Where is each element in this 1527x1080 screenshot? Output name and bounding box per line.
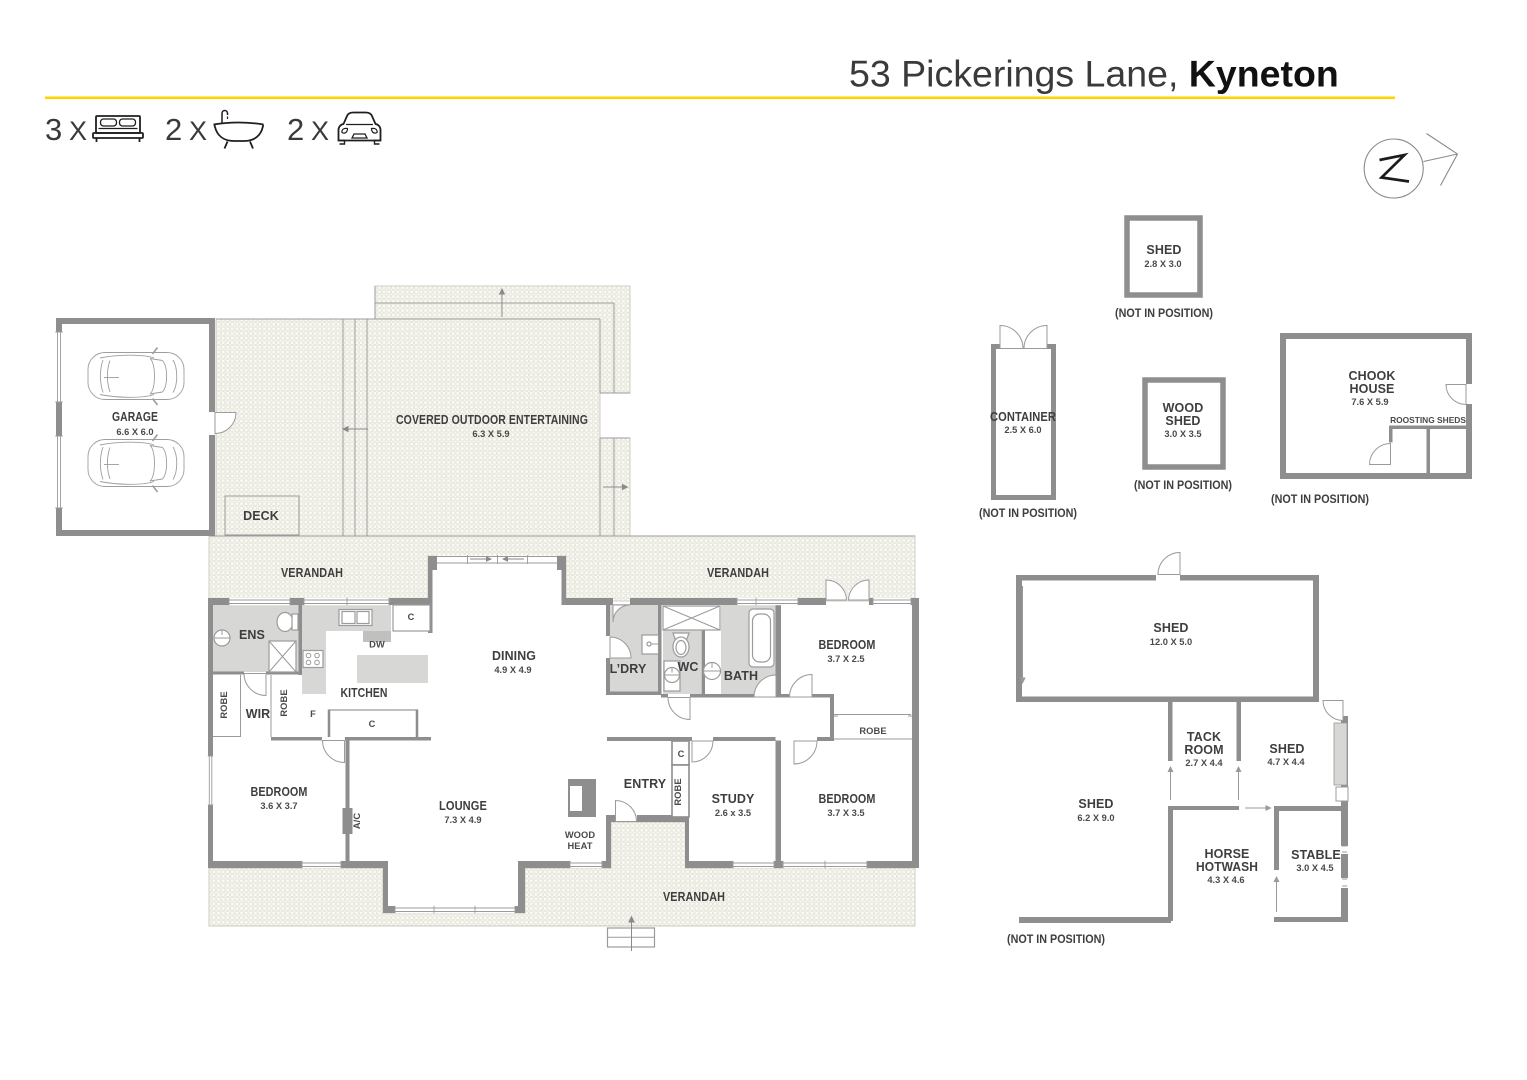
svg-text:7.3 X 4.9: 7.3 X 4.9 bbox=[444, 815, 481, 825]
svg-text:SHED: SHED bbox=[1153, 621, 1188, 635]
svg-text:ROBE: ROBE bbox=[219, 691, 229, 718]
svg-text:STUDY: STUDY bbox=[712, 792, 755, 806]
svg-text:4.7 X 4.4: 4.7 X 4.4 bbox=[1267, 757, 1305, 767]
svg-text:L’DRY: L’DRY bbox=[610, 662, 647, 676]
svg-text:(NOT IN POSITION): (NOT IN POSITION) bbox=[1134, 478, 1232, 492]
svg-text:4.9 X 4.9: 4.9 X 4.9 bbox=[494, 665, 531, 675]
svg-text:CONTAINER: CONTAINER bbox=[990, 410, 1056, 424]
svg-text:DW: DW bbox=[369, 640, 385, 650]
svg-text:HOTWASH: HOTWASH bbox=[1196, 860, 1258, 874]
svg-text:BATH: BATH bbox=[724, 669, 758, 683]
svg-text:X: X bbox=[69, 116, 87, 146]
svg-text:TACK: TACK bbox=[1187, 730, 1221, 744]
svg-text:3.0 X 4.5: 3.0 X 4.5 bbox=[1296, 863, 1333, 873]
svg-text:DECK: DECK bbox=[243, 509, 279, 523]
svg-text:DINING: DINING bbox=[492, 649, 536, 663]
svg-text:2.7 X 4.4: 2.7 X 4.4 bbox=[1185, 758, 1223, 768]
svg-text:WOOD: WOOD bbox=[1163, 401, 1204, 415]
svg-text:F: F bbox=[310, 709, 316, 719]
svg-text:53 Pickerings Lane, Kyneton: 53 Pickerings Lane, Kyneton bbox=[849, 53, 1339, 95]
svg-text:2: 2 bbox=[165, 112, 182, 147]
svg-text:(NOT IN POSITION): (NOT IN POSITION) bbox=[1007, 932, 1105, 946]
svg-text:CHOOK: CHOOK bbox=[1348, 369, 1395, 383]
svg-text:6.2 X 9.0: 6.2 X 9.0 bbox=[1077, 813, 1114, 823]
svg-text:3.7 X 2.5: 3.7 X 2.5 bbox=[827, 654, 864, 664]
svg-text:WC: WC bbox=[677, 660, 698, 674]
svg-text:3: 3 bbox=[45, 112, 62, 147]
svg-text:SHED: SHED bbox=[1146, 243, 1181, 257]
svg-text:12.0 X 5.0: 12.0 X 5.0 bbox=[1150, 637, 1192, 647]
svg-text:LOUNGE: LOUNGE bbox=[439, 799, 487, 813]
svg-text:2.6 x 3.5: 2.6 x 3.5 bbox=[715, 808, 751, 818]
svg-text:HOUSE: HOUSE bbox=[1350, 382, 1395, 396]
svg-text:6.3 X 5.9: 6.3 X 5.9 bbox=[472, 429, 509, 439]
svg-text:ROOSTING SHEDS: ROOSTING SHEDS bbox=[1390, 415, 1466, 425]
svg-text:(NOT IN POSITION): (NOT IN POSITION) bbox=[1271, 492, 1369, 506]
svg-text:6.6 X 6.0: 6.6 X 6.0 bbox=[116, 427, 153, 437]
svg-text:HEAT: HEAT bbox=[567, 841, 592, 851]
svg-text:(NOT IN POSITION): (NOT IN POSITION) bbox=[1115, 306, 1213, 320]
svg-text:SHED: SHED bbox=[1078, 797, 1113, 811]
svg-text:2.5 X 6.0: 2.5 X 6.0 bbox=[1004, 425, 1041, 435]
svg-text:ROBE: ROBE bbox=[673, 778, 683, 805]
svg-text:KITCHEN: KITCHEN bbox=[341, 686, 388, 700]
svg-text:X: X bbox=[311, 116, 329, 146]
svg-text:ROBE: ROBE bbox=[279, 689, 289, 716]
svg-text:3.7 X 3.5: 3.7 X 3.5 bbox=[827, 808, 864, 818]
svg-text:SHED: SHED bbox=[1269, 742, 1304, 756]
svg-text:VERANDAH: VERANDAH bbox=[663, 890, 725, 904]
svg-text:A/C: A/C bbox=[352, 813, 362, 829]
svg-text:BEDROOM: BEDROOM bbox=[251, 785, 308, 799]
svg-text:VERANDAH: VERANDAH bbox=[281, 566, 343, 580]
svg-text:HORSE: HORSE bbox=[1205, 847, 1250, 861]
svg-text:WIR: WIR bbox=[246, 707, 271, 721]
svg-text:C: C bbox=[369, 719, 376, 729]
svg-text:BEDROOM: BEDROOM bbox=[819, 792, 876, 806]
svg-text:X: X bbox=[189, 116, 207, 146]
svg-text:3.6 X 3.7: 3.6 X 3.7 bbox=[260, 801, 297, 811]
svg-text:ROBE: ROBE bbox=[859, 726, 886, 736]
svg-text:C: C bbox=[408, 612, 415, 622]
svg-text:7.6 X 5.9: 7.6 X 5.9 bbox=[1351, 397, 1388, 407]
svg-text:2: 2 bbox=[287, 112, 304, 147]
svg-text:WOOD: WOOD bbox=[565, 830, 596, 840]
svg-text:STABLE: STABLE bbox=[1291, 848, 1341, 862]
svg-text:C: C bbox=[678, 749, 685, 759]
svg-text:2.8 X 3.0: 2.8 X 3.0 bbox=[1144, 259, 1181, 269]
svg-text:COVERED OUTDOOR ENTERTAINING: COVERED OUTDOOR ENTERTAINING bbox=[396, 413, 588, 427]
svg-text:4.3 X 4.6: 4.3 X 4.6 bbox=[1207, 875, 1244, 885]
svg-text:ENS: ENS bbox=[239, 628, 265, 642]
svg-text:ENTRY: ENTRY bbox=[624, 777, 667, 791]
svg-text:VERANDAH: VERANDAH bbox=[707, 566, 769, 580]
svg-text:ROOM: ROOM bbox=[1184, 743, 1223, 757]
svg-text:(NOT IN POSITION): (NOT IN POSITION) bbox=[979, 506, 1077, 520]
svg-text:BEDROOM: BEDROOM bbox=[819, 638, 876, 652]
svg-text:SHED: SHED bbox=[1165, 414, 1200, 428]
svg-text:3.0 X 3.5: 3.0 X 3.5 bbox=[1164, 429, 1201, 439]
svg-text:GARAGE: GARAGE bbox=[112, 410, 158, 424]
